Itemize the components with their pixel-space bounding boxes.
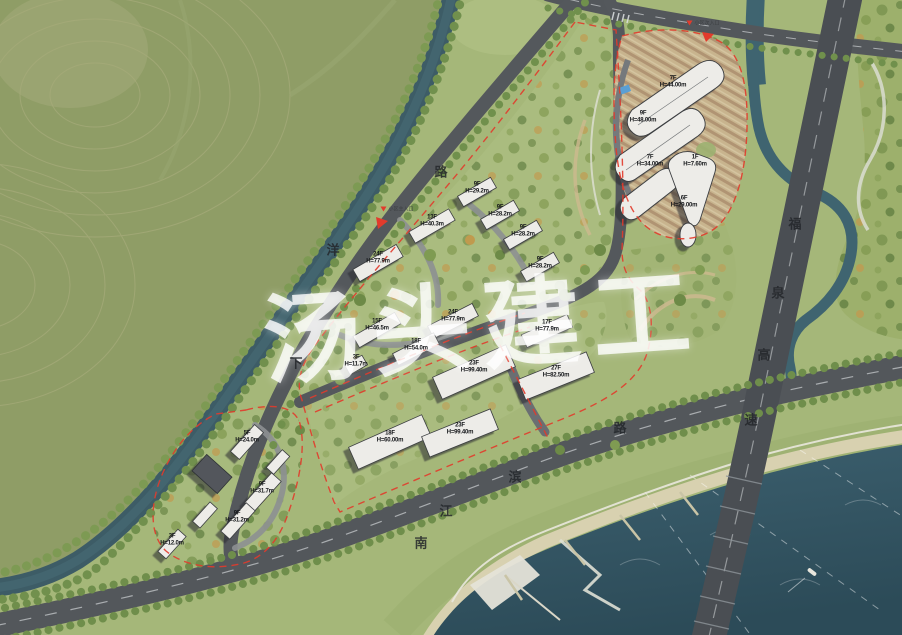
site-plan: 汤头建工 7FH=44.00m9FH=48.00m7FH=34.00m1FH=7… xyxy=(0,0,902,635)
top-right-parcel xyxy=(614,30,747,247)
